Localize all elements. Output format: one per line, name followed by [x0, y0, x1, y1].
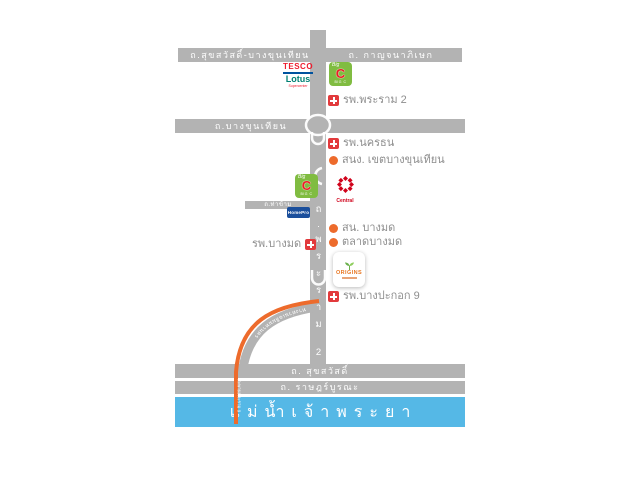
road-label-suksawat: ถ. สุขสวัสดิ์	[291, 367, 348, 376]
landmark-bangmot-hospital: รพ.บางมด	[252, 239, 316, 250]
sprout-icon	[344, 261, 355, 270]
road-label-ratburana: ถ. ราษฎร์บูรณะ	[281, 383, 360, 392]
bigc-logo: Big C BIG C	[295, 174, 318, 198]
ramp-label: ทางด่วนเฉลิมมหานคร	[252, 306, 306, 339]
homepro-wordmark: HomePro	[288, 210, 309, 215]
tesco-lotus-logo: TESCO Lotus Supercenter	[283, 63, 313, 88]
river-label: แม่น้ำเจ้าพระยา	[223, 400, 418, 425]
landmark-bangpakok9-hospital: รพ.บางปะกอก 9	[328, 291, 420, 302]
road-suksawat: ถ. สุขสวัสดิ์	[175, 364, 465, 378]
hospital-cross-icon	[328, 291, 339, 302]
landmark-nakhonthon-hospital: รพ.นครธน	[328, 138, 394, 149]
landmark-label: รพ.บางมด	[252, 239, 301, 250]
landmark-bangmot-police: สน. บางมด	[329, 223, 395, 234]
homepro-logo: HomePro	[287, 207, 310, 218]
hospital-cross-icon	[305, 239, 316, 250]
bigc-logo: Big C BIG C	[329, 62, 352, 86]
landmark-rama2-hospital: รพ.พระราม 2	[328, 95, 407, 106]
hospital-cross-icon	[328, 138, 339, 149]
origins-wordmark: ORIGINS	[336, 271, 362, 277]
landmark-label: ตลาดบางมด	[342, 237, 402, 248]
origins-tagline-bar	[342, 277, 357, 279]
landmark-label: รพ.นครธน	[343, 138, 394, 149]
hospital-cross-icon	[328, 95, 339, 106]
landmark-district-office: สนง. เขตบางขุนเทียน	[329, 155, 445, 166]
road-label-rama2: ถ.พระราม 2	[310, 202, 326, 360]
landmark-bangmot-market: ตลาดบางมด	[329, 237, 402, 248]
road-label-suksawat-bangkhunthian: ถ.สุขสวัสดิ์-บางขุนเทียน	[186, 51, 314, 60]
bigc-name-text: BIG C	[296, 192, 317, 198]
orange-dot-icon	[329, 224, 338, 233]
origins-logo: ORIGINS	[333, 252, 365, 287]
landmark-label: รพ.พระราม 2	[343, 95, 407, 106]
central-logo: Central	[332, 176, 358, 204]
bigc-name-text: BIG C	[330, 80, 351, 86]
landmark-label: รพ.บางปะกอก 9	[343, 291, 420, 302]
tesco-wordmark: TESCO	[283, 63, 313, 74]
landmark-label: สน. บางมด	[342, 223, 395, 234]
bigc-c-letter: C	[330, 68, 351, 80]
road-top: ถ.สุขสวัสดิ์-บางขุนเทียน ถ. กาญจนาภิเษก	[178, 48, 462, 62]
road-label-kanchanaphisek: ถ. กาญจนาภิเษก	[332, 51, 450, 60]
central-flower-icon	[337, 176, 354, 193]
landmark-label: สนง. เขตบางขุนเทียน	[342, 155, 445, 166]
road-ratburana: ถ. ราษฎร์บูรณะ	[175, 381, 465, 394]
orange-dot-icon	[329, 238, 338, 247]
lotus-wordmark: Lotus	[283, 74, 313, 84]
road-label-bangkhunthian: ถ.บางขุนเทียน	[187, 122, 315, 131]
bigc-c-letter: C	[296, 180, 317, 192]
central-wordmark: Central	[332, 198, 358, 204]
chao-phraya-river: แม่น้ำเจ้าพระยา	[175, 397, 465, 427]
road-bangkhunthian: ถ.บางขุนเทียน	[175, 119, 465, 133]
map-canvas: ถ.พระราม 2 ถ.สุขสวัสดิ์-บางขุนเทียน ถ. ก…	[0, 0, 640, 480]
tesco-tagline: Supercenter	[283, 84, 313, 88]
orange-dot-icon	[329, 156, 338, 165]
